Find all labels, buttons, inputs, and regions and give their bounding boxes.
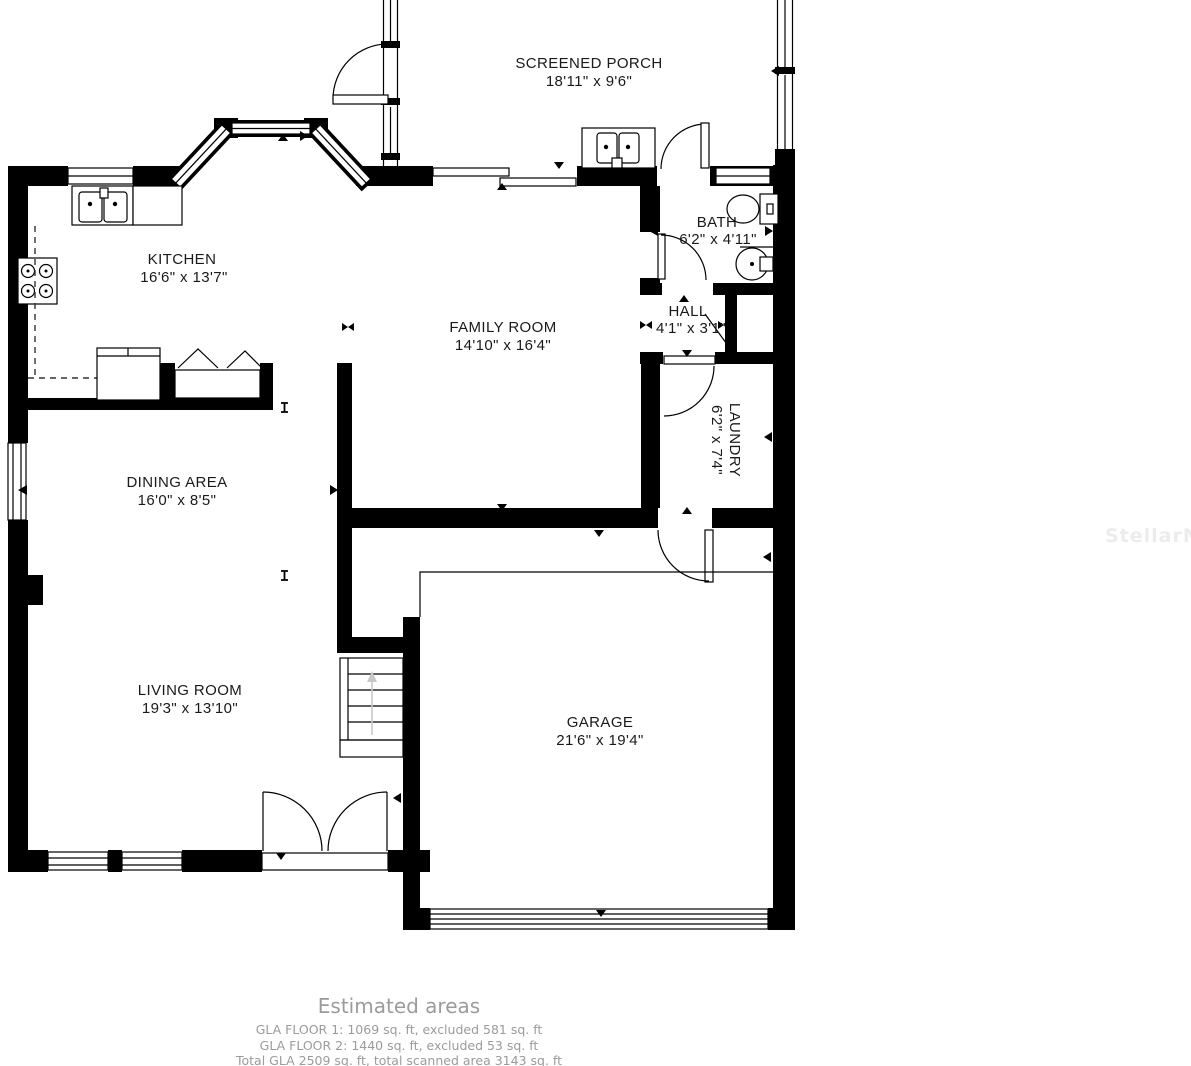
estimated-areas-title: Estimated areas [318, 994, 480, 1018]
bath-top-window [716, 168, 770, 184]
garage-outline [420, 572, 773, 617]
ibeam-tick-1 [281, 403, 288, 412]
bowtie-family [342, 323, 354, 331]
room-dims-living-room: 19'3" x 13'10" [142, 700, 238, 717]
room-dims-dining-area: 16'0" x 8'5" [138, 492, 217, 509]
sliding-door [433, 168, 576, 186]
room-label-screened-porch: SCREENED PORCH [515, 55, 662, 72]
estimated-areas-block: Estimated areas GLA FLOOR 1: 1069 sq. ft… [235, 994, 562, 1066]
room-label-bath: BATH [697, 214, 738, 231]
stove-icon [18, 258, 57, 304]
floor-plan-drawing: SCREENED PORCH 18'11" x 9'6" KITCHEN 16'… [0, 0, 1191, 1066]
room-label-family-room: FAMILY ROOM [449, 319, 556, 336]
stellar-mls-watermark: StellarMLS [1105, 525, 1191, 547]
ibeam-tick-2 [281, 571, 288, 580]
room-dims-garage: 21'6" x 19'4" [556, 732, 643, 749]
room-label-living-room: LIVING ROOM [138, 682, 242, 699]
kitchen-alcove [175, 349, 262, 398]
room-dims-hall: 4'1" x 3'1" [656, 320, 726, 337]
kitchen-top-window [68, 168, 133, 184]
room-label-kitchen: KITCHEN [148, 251, 217, 268]
bowtie-hall-left [640, 321, 652, 329]
room-label-hall: HALL [668, 303, 707, 320]
kitchen-counter [133, 186, 182, 225]
room-dims-bath: 6'2" x 4'11" [679, 231, 757, 248]
living-bottom-window-2 [122, 852, 182, 870]
garage-entry-door [658, 530, 713, 582]
dining-left-window [8, 443, 26, 520]
chimney-bump [26, 575, 43, 605]
porch-screen-door [333, 44, 388, 104]
stairs [340, 658, 403, 757]
bath-sink [736, 247, 773, 280]
fixtures-layer [18, 128, 778, 757]
room-dims-screened-porch: 18'11" x 9'6" [546, 73, 632, 90]
laundry-door [664, 356, 715, 416]
room-label-laundry-group: LAUNDRY 6'2" x 7'4" [708, 403, 743, 477]
room-label-dining-area: DINING AREA [126, 474, 227, 491]
porch-sink [582, 128, 655, 168]
gla-floor1-line: GLA FLOOR 1: 1069 sq. ft, excluded 581 s… [256, 1022, 543, 1037]
floor-plan-page: SCREENED PORCH 18'11" x 9'6" KITCHEN 16'… [0, 0, 1191, 1066]
room-dims-laundry: 6'2" x 7'4" [708, 405, 725, 475]
room-dims-kitchen: 16'6" x 13'7" [140, 269, 227, 286]
gla-floor2-line: GLA FLOOR 2: 1440 sq. ft, excluded 53 sq… [260, 1038, 539, 1053]
porch-hall-door [661, 123, 709, 169]
room-dims-family-room: 14'10" x 16'4" [455, 337, 551, 354]
room-label-garage: GARAGE [567, 714, 634, 731]
living-bottom-window-1 [48, 852, 108, 870]
kitchen-sink [72, 186, 133, 225]
gla-total-line: Total GLA 2509 sq. ft, total scanned are… [235, 1053, 562, 1066]
room-label-laundry: LAUNDRY [726, 403, 743, 477]
refrigerator [97, 348, 160, 400]
walls-layer [8, 118, 795, 930]
bay-window [167, 121, 375, 192]
